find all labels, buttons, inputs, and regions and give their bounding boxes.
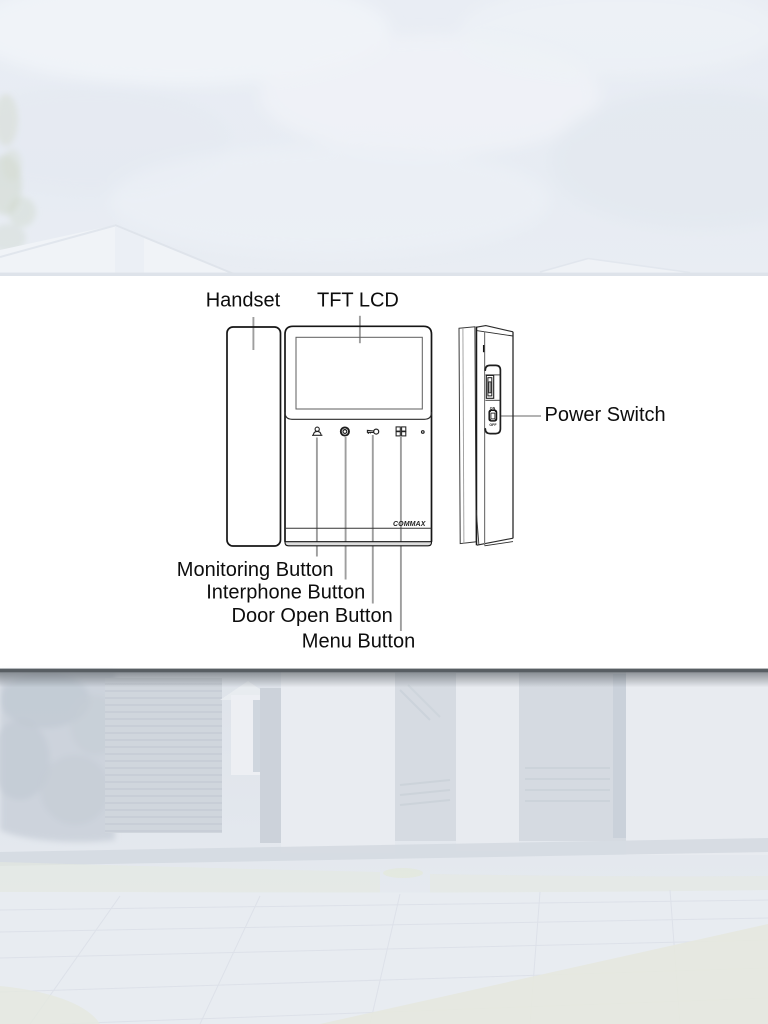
svg-text:COMMAX: COMMAX <box>393 521 427 528</box>
svg-text:Door Open Button: Door Open Button <box>232 605 393 627</box>
svg-text:OFF: OFF <box>489 423 497 427</box>
svg-text:Monitoring Button: Monitoring Button <box>177 559 334 581</box>
svg-text:Handset: Handset <box>206 290 281 312</box>
svg-text:Power Switch: Power Switch <box>545 404 666 426</box>
svg-text:Menu Button: Menu Button <box>302 631 415 653</box>
svg-text:Interphone Button: Interphone Button <box>206 581 365 603</box>
svg-text:TFT LCD: TFT LCD <box>317 290 399 312</box>
